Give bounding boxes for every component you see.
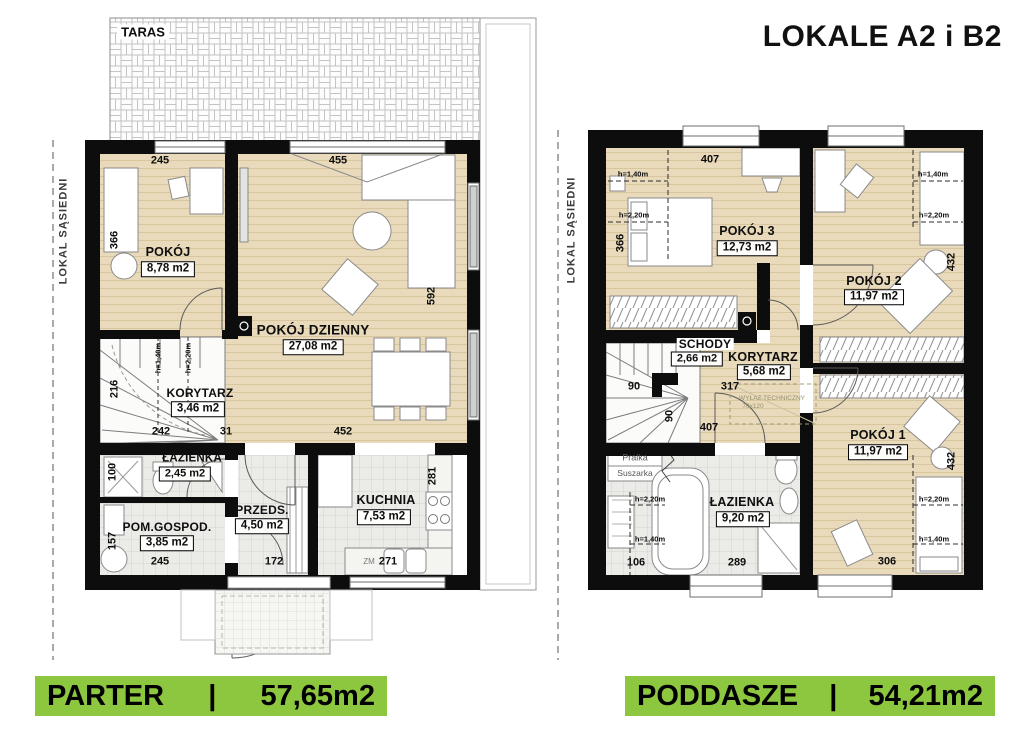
room-dzienny-name: POKÓJ DZIENNY [257,323,370,337]
room-przeds-name: PRZEDS. [235,504,288,516]
page-title: LOKALE A2 i B2 [763,20,1002,54]
room-korytarz2-name: KORYTARZ [728,351,798,364]
dim-90-a: 90 [628,382,640,393]
room-lazienka2-area: 9,20 m2 [716,511,770,527]
room-korytarz2-area: 5,68 m2 [737,364,791,380]
room-lazienka-name: ŁAZIENKA [162,453,222,465]
room-pokoj2-name: POKÓJ 2 [846,275,902,288]
room-gospod-name: POM.GOSPOD. [123,521,212,533]
height-220-p2: h=2,20m [919,211,949,219]
dim-432-p1: 432 [947,452,958,470]
height-140-p1: h=1,40m [919,535,949,543]
suszarka-label: Suszarka [617,469,652,478]
room-korytarz-area: 3,46 m2 [171,401,225,417]
room-lazienka-area: 2,45 m2 [159,467,211,482]
dim-455: 455 [329,156,347,167]
dim-306: 306 [878,557,896,568]
dim-100: 100 [108,463,119,481]
wylaz-label-1: WYŁAZ TECHNICZNY [739,396,805,403]
dim-216: 216 [110,380,121,398]
room-pokoj-name: POKÓJ [146,246,191,259]
height-140-stairs: h=1,40m [154,343,162,373]
dim-157: 157 [108,532,119,550]
poddasze-banner-label: PODDASZE [637,680,798,713]
room-gospod-area: 3,85 m2 [140,535,194,551]
room-korytarz-name: KORYTARZ [167,387,234,399]
dim-281: 281 [428,467,439,485]
room-dzienny-area: 27,08 m2 [283,339,344,355]
dim-432-p2: 432 [947,253,958,271]
pralka-label: Pralka [622,454,648,463]
height-220-p1: h=2,20m [919,495,949,503]
parter-banner-separator: | [208,680,216,713]
room-schody-area: 2,66 m2 [671,352,723,367]
room-pokoj1-name: POKÓJ 1 [850,429,906,442]
dim-366-right: 366 [616,234,627,252]
dim-90-b: 90 [665,410,676,422]
poddasze-banner-separator: | [829,680,837,713]
neighbor-label-right: LOKAL SĄSIEDNI [567,177,578,284]
height-220-stairs: h=2,20m [184,343,192,373]
dim-172: 172 [265,557,283,568]
dim-245-top: 245 [151,156,169,167]
poddasze-banner: PODDASZE | 54,21m2 [625,676,995,716]
height-140-bath: h=1,40m [635,535,665,543]
dim-366: 366 [110,231,121,249]
height-140-p2: h=1,40m [918,170,948,178]
parter-banner: PARTER | 57,65m2 [35,676,387,716]
zm-label: ZM [363,558,375,566]
dim-289: 289 [728,558,746,569]
dim-242: 242 [152,427,170,438]
dim-407-top: 407 [701,155,719,166]
room-lazienka2-name: ŁAZIENKA [710,496,775,509]
room-pokoj1-area: 11,97 m2 [848,444,908,460]
dim-31: 31 [220,427,232,438]
room-kuchnia-name: KUCHNIA [356,494,415,507]
dim-592: 592 [427,287,438,305]
neighbor-label-left: LOKAL SĄSIEDNI [59,178,70,285]
room-kuchnia-area: 7,53 m2 [357,509,411,525]
dim-245-bottom: 245 [151,557,169,568]
dim-271: 271 [379,557,397,568]
taras-label: TARAS [117,25,169,40]
dim-106: 106 [627,558,645,569]
parter-banner-area: 57,65m2 [260,680,375,713]
parter-banner-label: PARTER [47,680,164,713]
room-pokoj-area: 8,78 m2 [141,261,195,277]
height-220-p3: h=2,20m [619,211,649,219]
room-pokoj2-area: 11,97 m2 [844,289,904,305]
dim-452: 452 [334,427,352,438]
dim-407-bottom: 407 [700,423,718,434]
height-140-p3: h=1,40m [618,170,648,178]
dim-317: 317 [721,382,739,393]
room-pokoj3-area: 12,73 m2 [717,240,778,256]
wylaz-label-2: 70x120 [742,404,763,411]
room-pokoj3-name: POKÓJ 3 [719,225,775,238]
room-schody-name: SCHODY [677,338,734,350]
room-przeds-area: 4,50 m2 [235,518,289,534]
height-220-bath: h=2,20m [635,495,665,503]
poddasze-banner-area: 54,21m2 [868,680,983,713]
